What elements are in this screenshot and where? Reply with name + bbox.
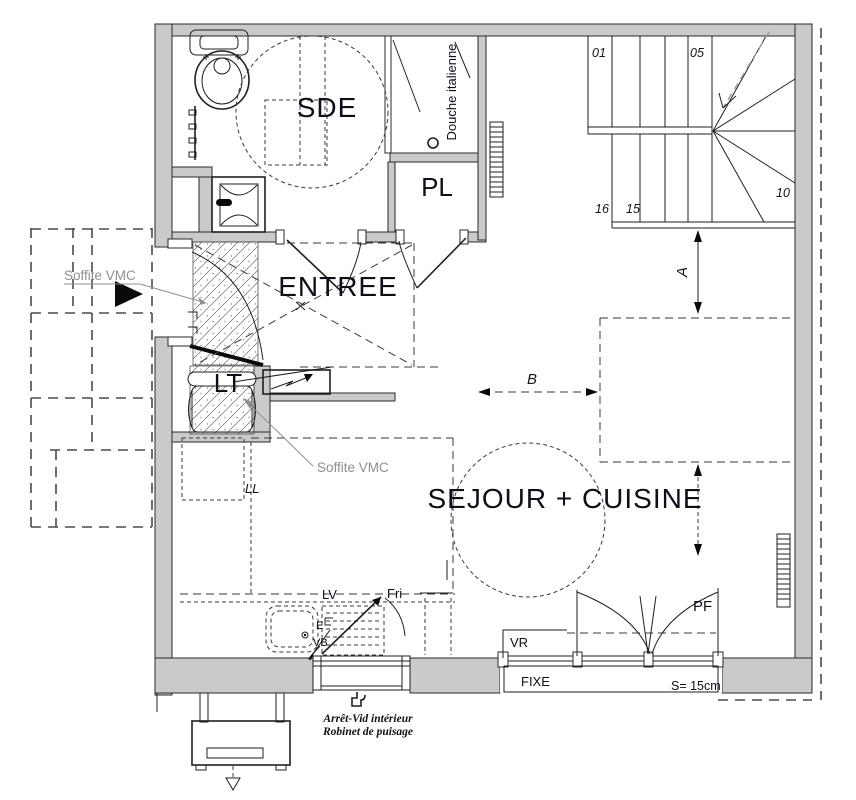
sejour-guides xyxy=(451,318,795,607)
radiator-sejour xyxy=(777,534,790,607)
exterior-unit xyxy=(192,693,290,790)
label-e: E xyxy=(316,620,323,632)
kitchen-sink xyxy=(266,606,318,652)
label-fixe: FIXE xyxy=(521,674,550,689)
label-ll: LL xyxy=(245,481,259,496)
stair-step-15: 15 xyxy=(626,202,640,216)
washbasin-vanity xyxy=(212,177,265,232)
pl-door xyxy=(399,238,466,288)
staircase: 01 05 10 15 16 xyxy=(588,32,795,228)
label-soffite-vmc-kitchen: Soffite VMC xyxy=(317,460,389,475)
entrance-arrow xyxy=(115,281,143,307)
label-fri: Fri xyxy=(387,586,402,601)
room-label-entree: ENTREE xyxy=(278,271,398,302)
stair-step-10: 10 xyxy=(776,186,790,200)
label-arret-vid: Arrêt-Vid intérieur xyxy=(322,713,413,725)
room-label-sde: SDE xyxy=(297,92,358,123)
toilet xyxy=(190,30,249,109)
label-pf: PF xyxy=(693,598,712,615)
stair-step-16: 16 xyxy=(595,202,609,216)
washing-machine-slot xyxy=(182,438,244,500)
label-vb: VB xyxy=(313,637,328,649)
label-vr: VR xyxy=(510,635,528,650)
dimension-b-label: B xyxy=(527,371,537,388)
label-soffite-vmc-left: Soffite VMC xyxy=(64,268,136,283)
fridge xyxy=(322,560,453,655)
label-douche-italienne: Douche italienne xyxy=(444,44,459,141)
floor-plan-page: 01 05 10 15 16 xyxy=(0,0,856,800)
dishwasher xyxy=(322,606,384,655)
outdoor-tap xyxy=(352,692,365,706)
towel-radiator xyxy=(189,106,196,160)
room-label-sejour-cuisine: SEJOUR + CUISINE xyxy=(427,483,702,514)
label-lv: LV xyxy=(322,587,337,602)
label-seuil: S= 15cm xyxy=(671,679,721,693)
dimension-a-label: A xyxy=(674,267,691,278)
room-label-lt: LT xyxy=(214,368,243,398)
label-robinet: Robinet de puisage xyxy=(322,726,413,738)
turning-circle-sejour xyxy=(451,443,605,597)
stair-step-01: 01 xyxy=(592,46,606,60)
floor-plan-drawing: 01 05 10 15 16 xyxy=(0,0,856,800)
room-label-pl: PL xyxy=(421,172,453,202)
radiator-hall xyxy=(490,122,503,197)
stair-step-05: 05 xyxy=(690,46,704,60)
kitchen-window xyxy=(313,656,410,706)
